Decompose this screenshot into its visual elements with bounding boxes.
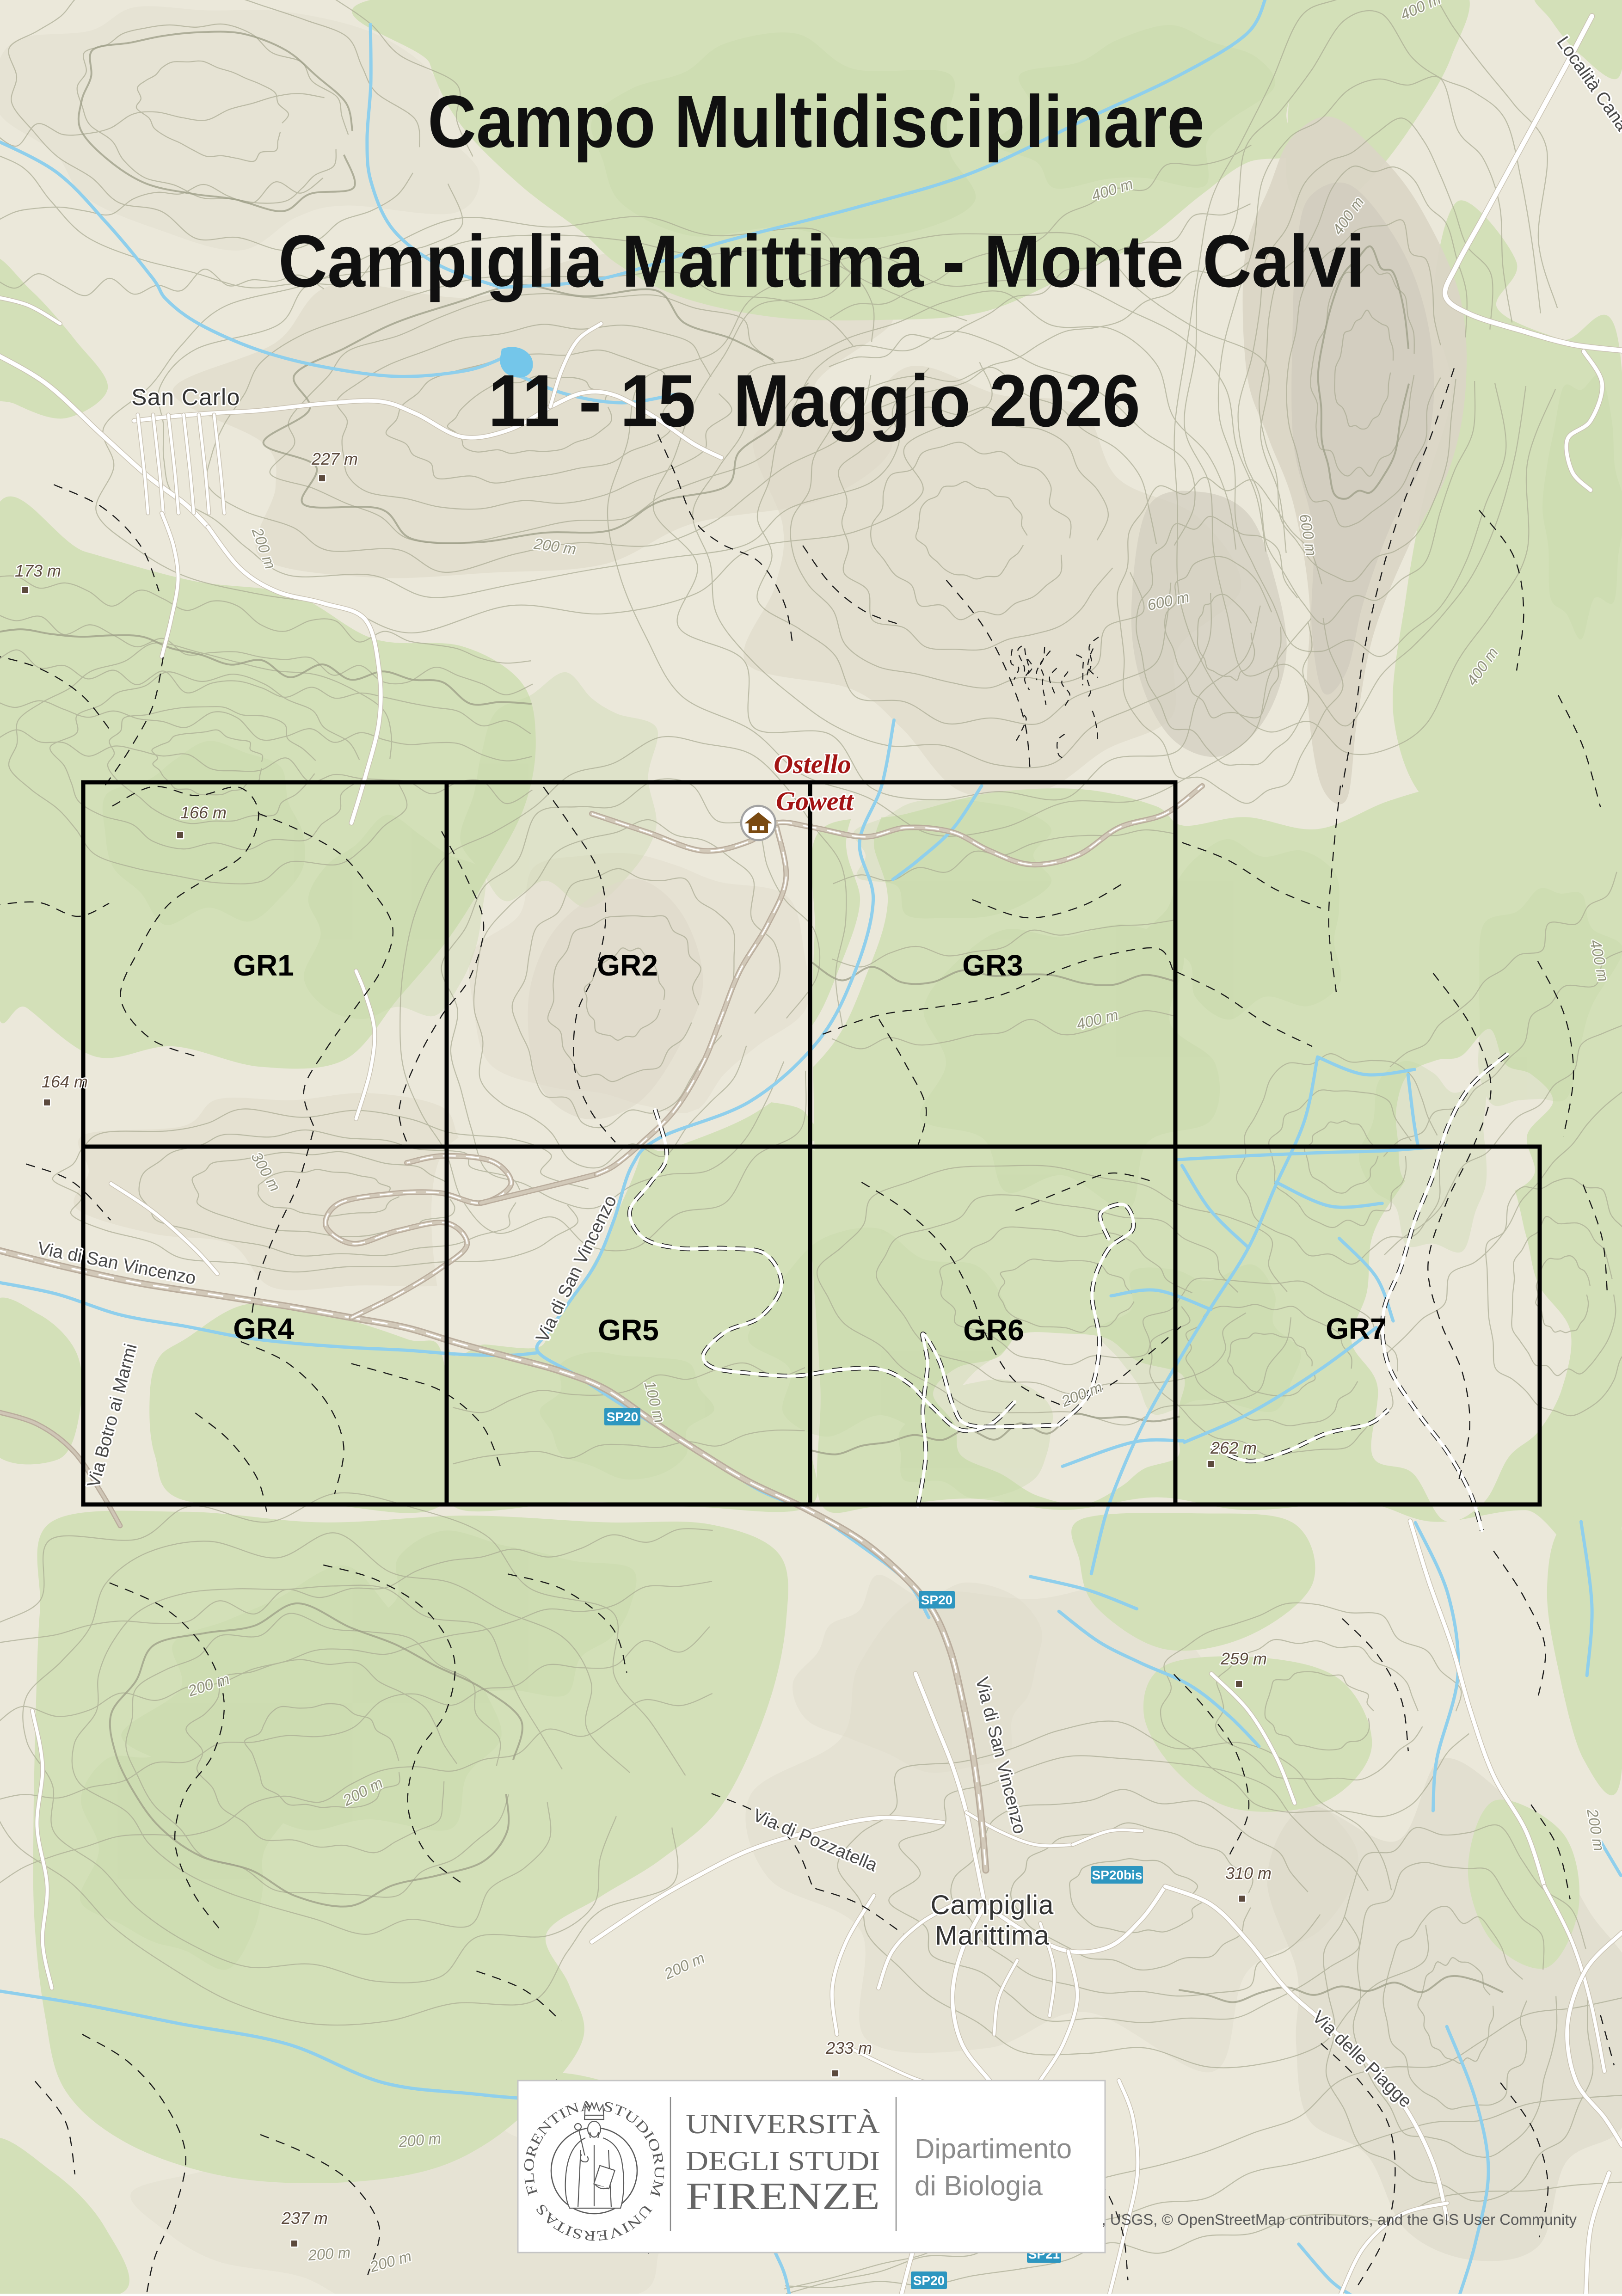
svg-text:SP20: SP20	[913, 2273, 945, 2288]
svg-text:GR1: GR1	[233, 949, 294, 982]
svg-text:, USGS, © OpenStreetMap contri: , USGS, © OpenStreetMap contributors, an…	[1101, 2211, 1577, 2228]
svg-text:164 m: 164 m	[42, 1072, 88, 1091]
svg-text:Marittima: Marittima	[935, 1921, 1049, 1951]
svg-text:233 m: 233 m	[825, 2038, 872, 2057]
svg-text:GR3: GR3	[962, 949, 1023, 982]
svg-text:SP20: SP20	[921, 1593, 953, 1607]
svg-text:DEGLI STUDI: DEGLI STUDI	[686, 2146, 880, 2176]
svg-text:GR2: GR2	[597, 949, 658, 982]
svg-text:200 m: 200 m	[307, 2244, 351, 2264]
svg-text:Dipartimento: Dipartimento	[915, 2133, 1072, 2164]
svg-text:227 m: 227 m	[311, 449, 358, 468]
svg-text:GR5: GR5	[598, 1314, 659, 1347]
svg-text:259 m: 259 m	[1220, 1649, 1267, 1668]
svg-text:262 m: 262 m	[1210, 1438, 1257, 1457]
svg-text:di Biologia: di Biologia	[915, 2170, 1043, 2201]
svg-text:11 - 15 Maggio 2026: 11 - 15 Maggio 2026	[488, 359, 1140, 442]
svg-text:173 m: 173 m	[15, 561, 61, 580]
svg-text:GR6: GR6	[963, 1314, 1024, 1347]
svg-text:San Carlo: San Carlo	[131, 384, 240, 410]
svg-text:237 m: 237 m	[281, 2209, 328, 2228]
svg-text:Gowett: Gowett	[776, 786, 854, 816]
svg-text:GR7: GR7	[1326, 1312, 1387, 1345]
svg-text:166 m: 166 m	[180, 803, 227, 822]
svg-text:UNIVERSITÀ: UNIVERSITÀ	[686, 2109, 880, 2139]
svg-text:SP20: SP20	[607, 1410, 639, 1424]
svg-text:Campiglia Marittima - Monte Ca: Campiglia Marittima - Monte Calvi	[278, 220, 1365, 302]
svg-text:Ostello: Ostello	[774, 749, 851, 779]
svg-text:310 m: 310 m	[1225, 1864, 1272, 1883]
svg-text:SP20bis: SP20bis	[1092, 1868, 1143, 1882]
svg-text:Campo Multidisciplinare: Campo Multidisciplinare	[428, 80, 1204, 163]
svg-text:FIRENZE: FIRENZE	[686, 2175, 880, 2218]
svg-text:Campiglia: Campiglia	[931, 1890, 1054, 1920]
svg-text:GR4: GR4	[233, 1312, 294, 1345]
